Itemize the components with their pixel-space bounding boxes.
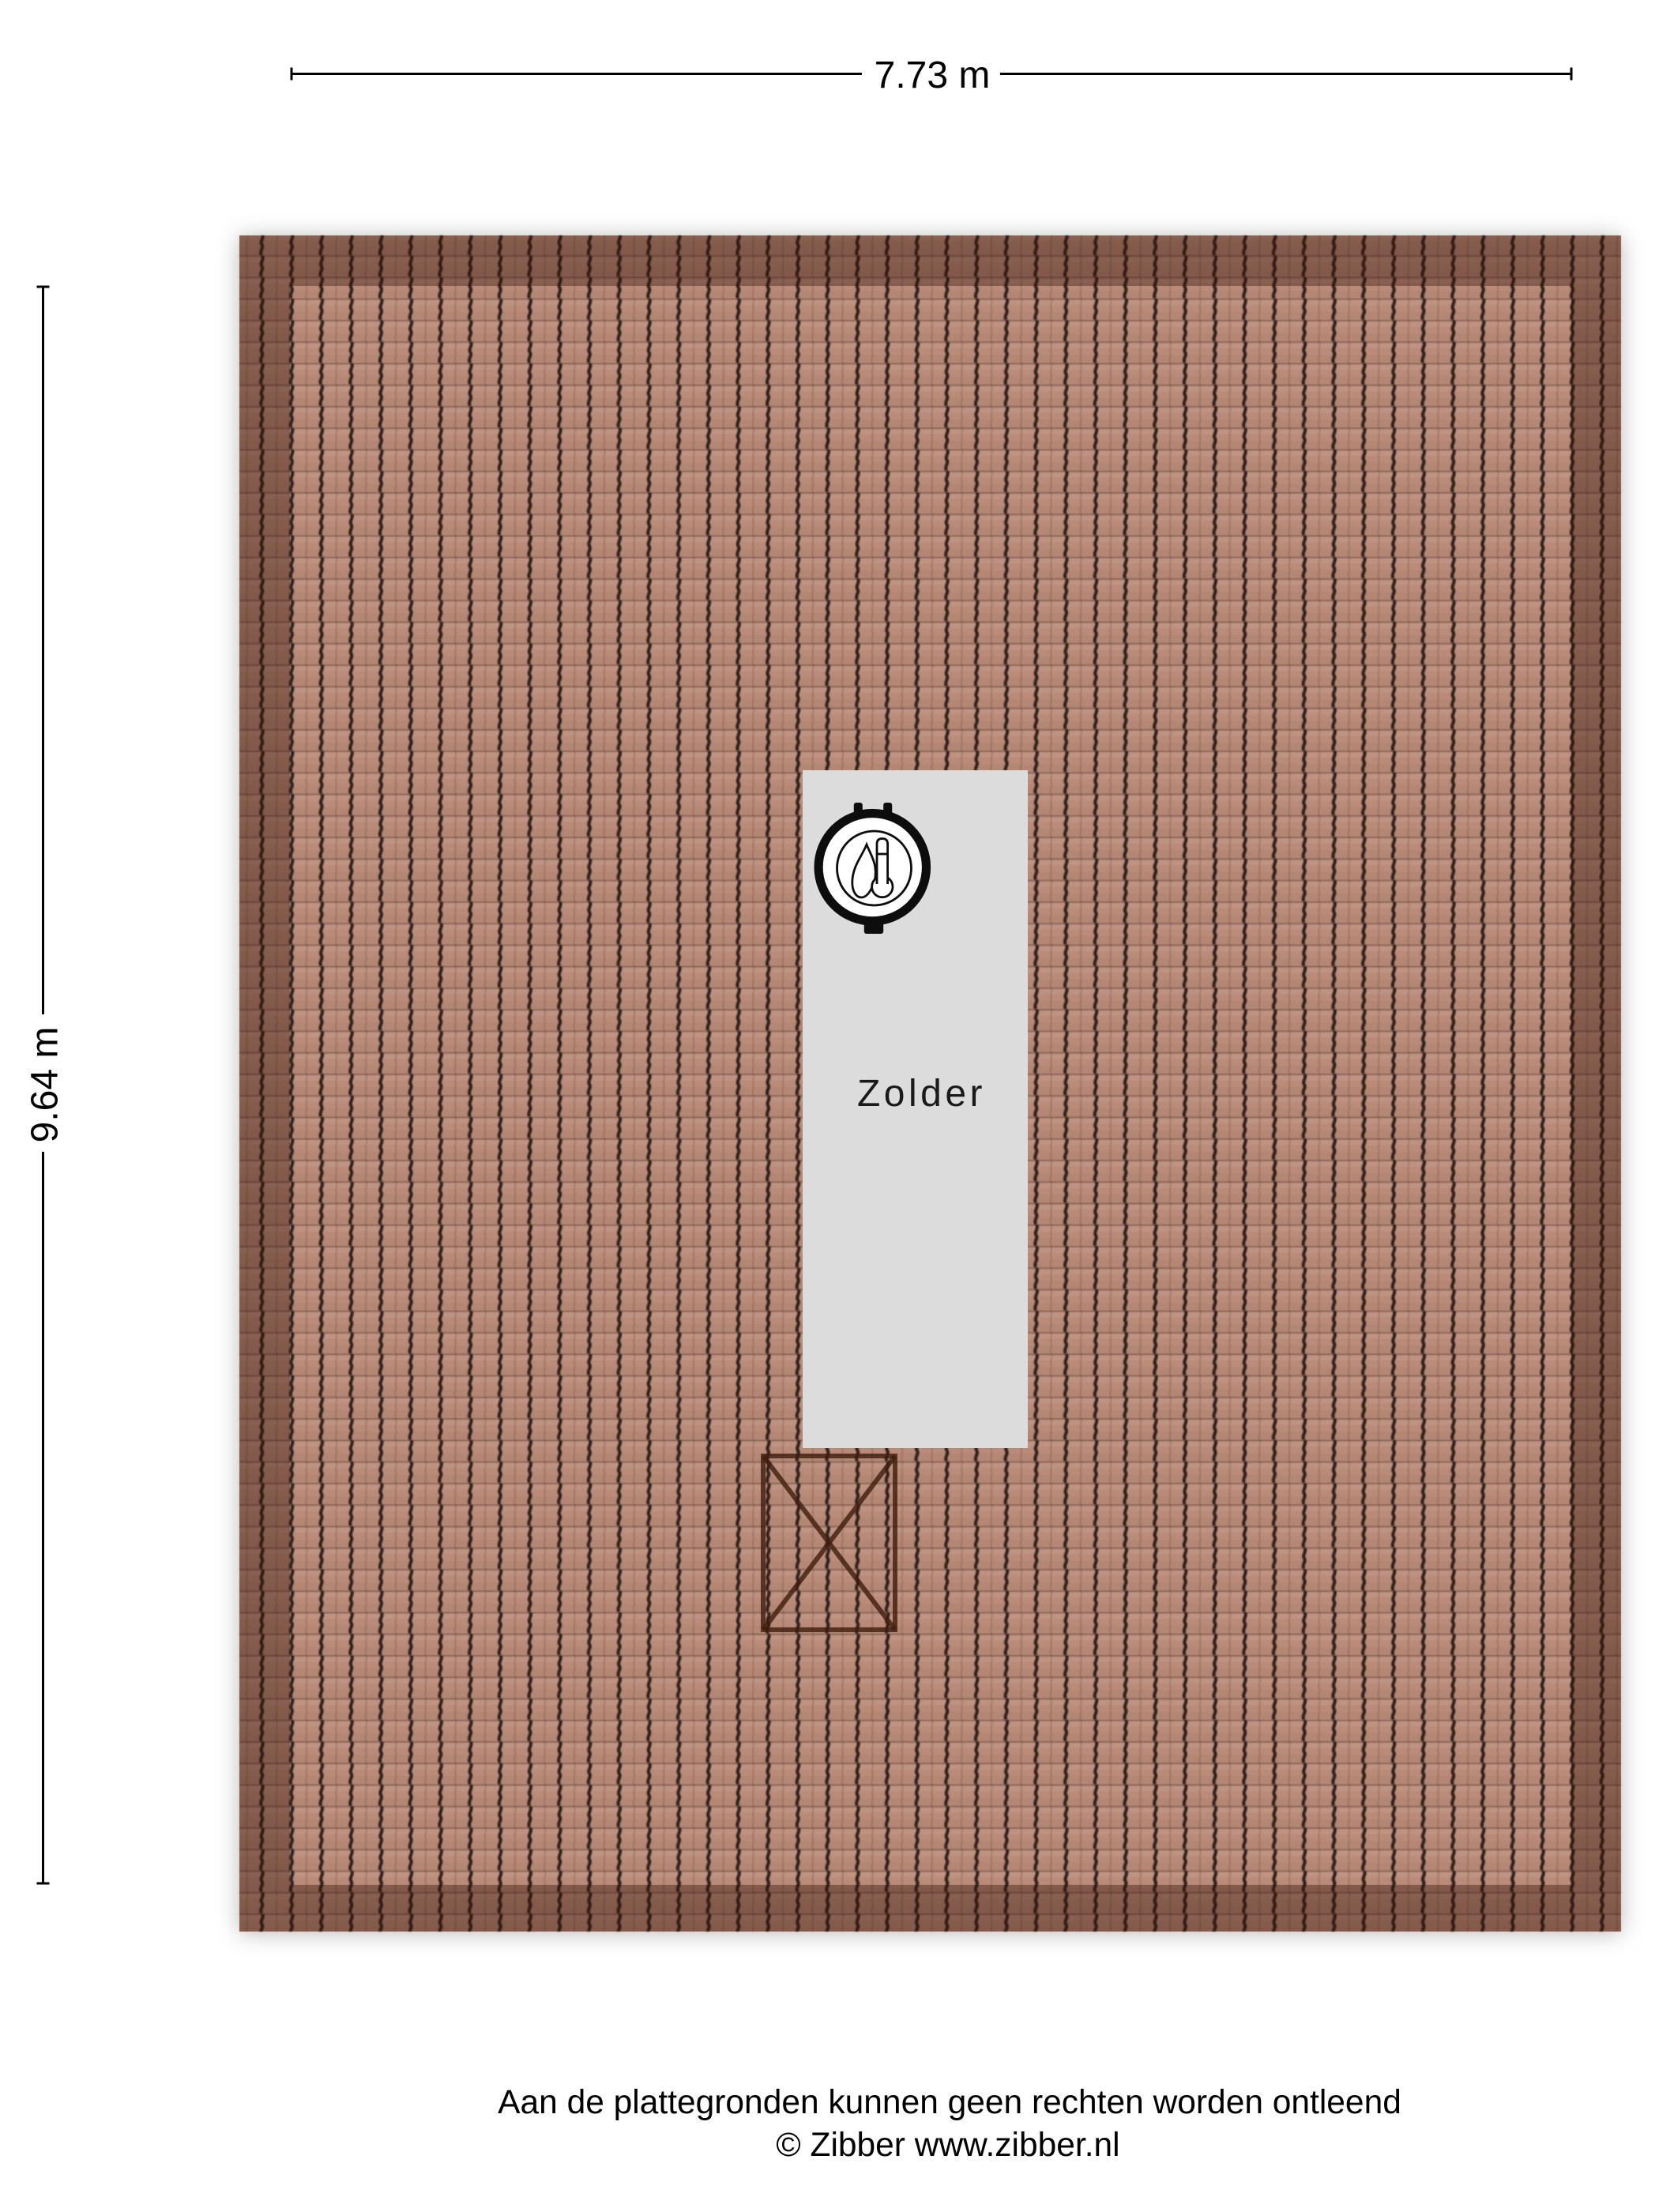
svg-text:9.64 m: 9.64 m xyxy=(24,1027,66,1143)
svg-text:Aan de plattegronden kunnen ge: Aan de plattegronden kunnen geen rechten… xyxy=(498,2084,1401,2121)
svg-text:7.73 m: 7.73 m xyxy=(875,55,991,96)
svg-text:Zolder: Zolder xyxy=(857,1073,986,1115)
svg-text:© Zibber www.zibber.nl: © Zibber www.zibber.nl xyxy=(776,2127,1119,2164)
